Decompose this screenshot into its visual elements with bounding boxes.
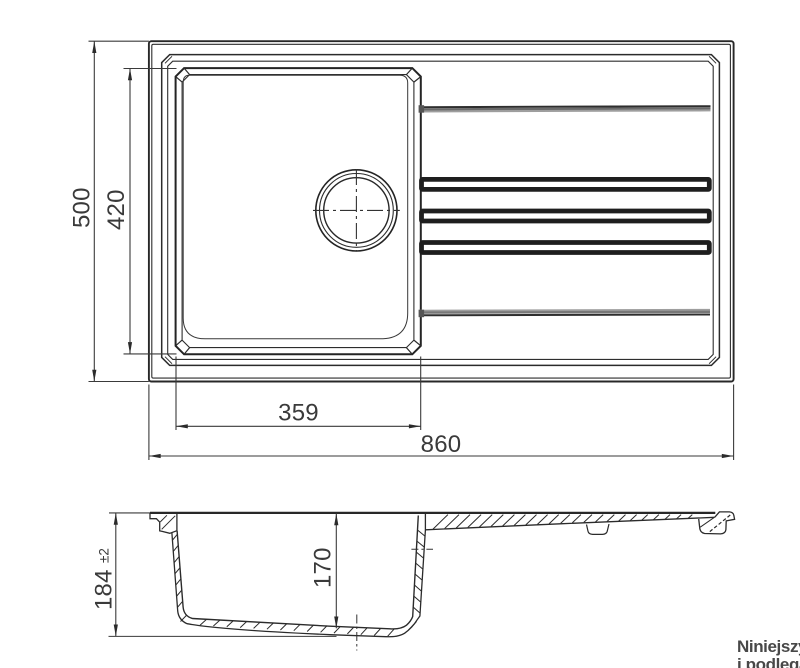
svg-text:±2: ±2 <box>97 548 112 563</box>
svg-text:170: 170 <box>310 547 337 588</box>
svg-text:359: 359 <box>278 400 319 427</box>
svg-text:420: 420 <box>103 189 130 230</box>
svg-text:500: 500 <box>69 187 96 228</box>
svg-text:860: 860 <box>421 431 462 458</box>
svg-text:184: 184 <box>91 569 118 610</box>
